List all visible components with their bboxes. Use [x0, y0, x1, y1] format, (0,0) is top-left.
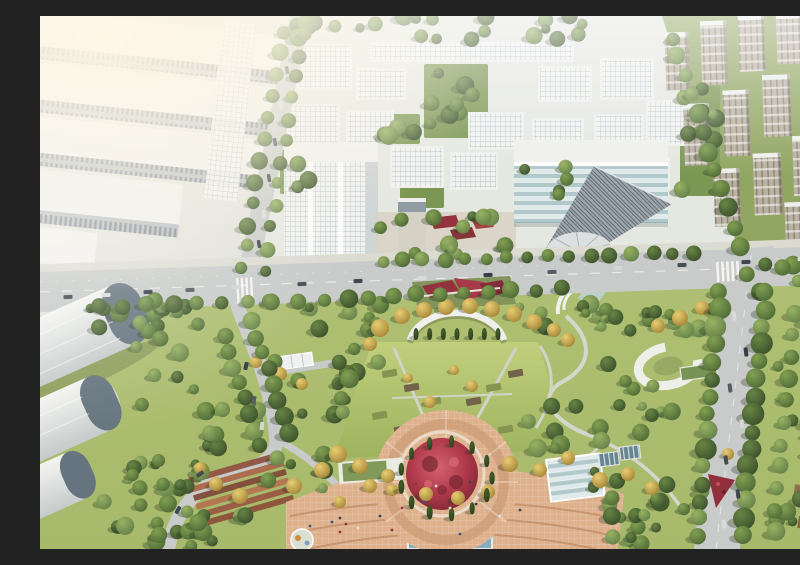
aerial-render-svg [40, 16, 800, 549]
side-haze [40, 16, 800, 549]
scene [40, 16, 800, 549]
